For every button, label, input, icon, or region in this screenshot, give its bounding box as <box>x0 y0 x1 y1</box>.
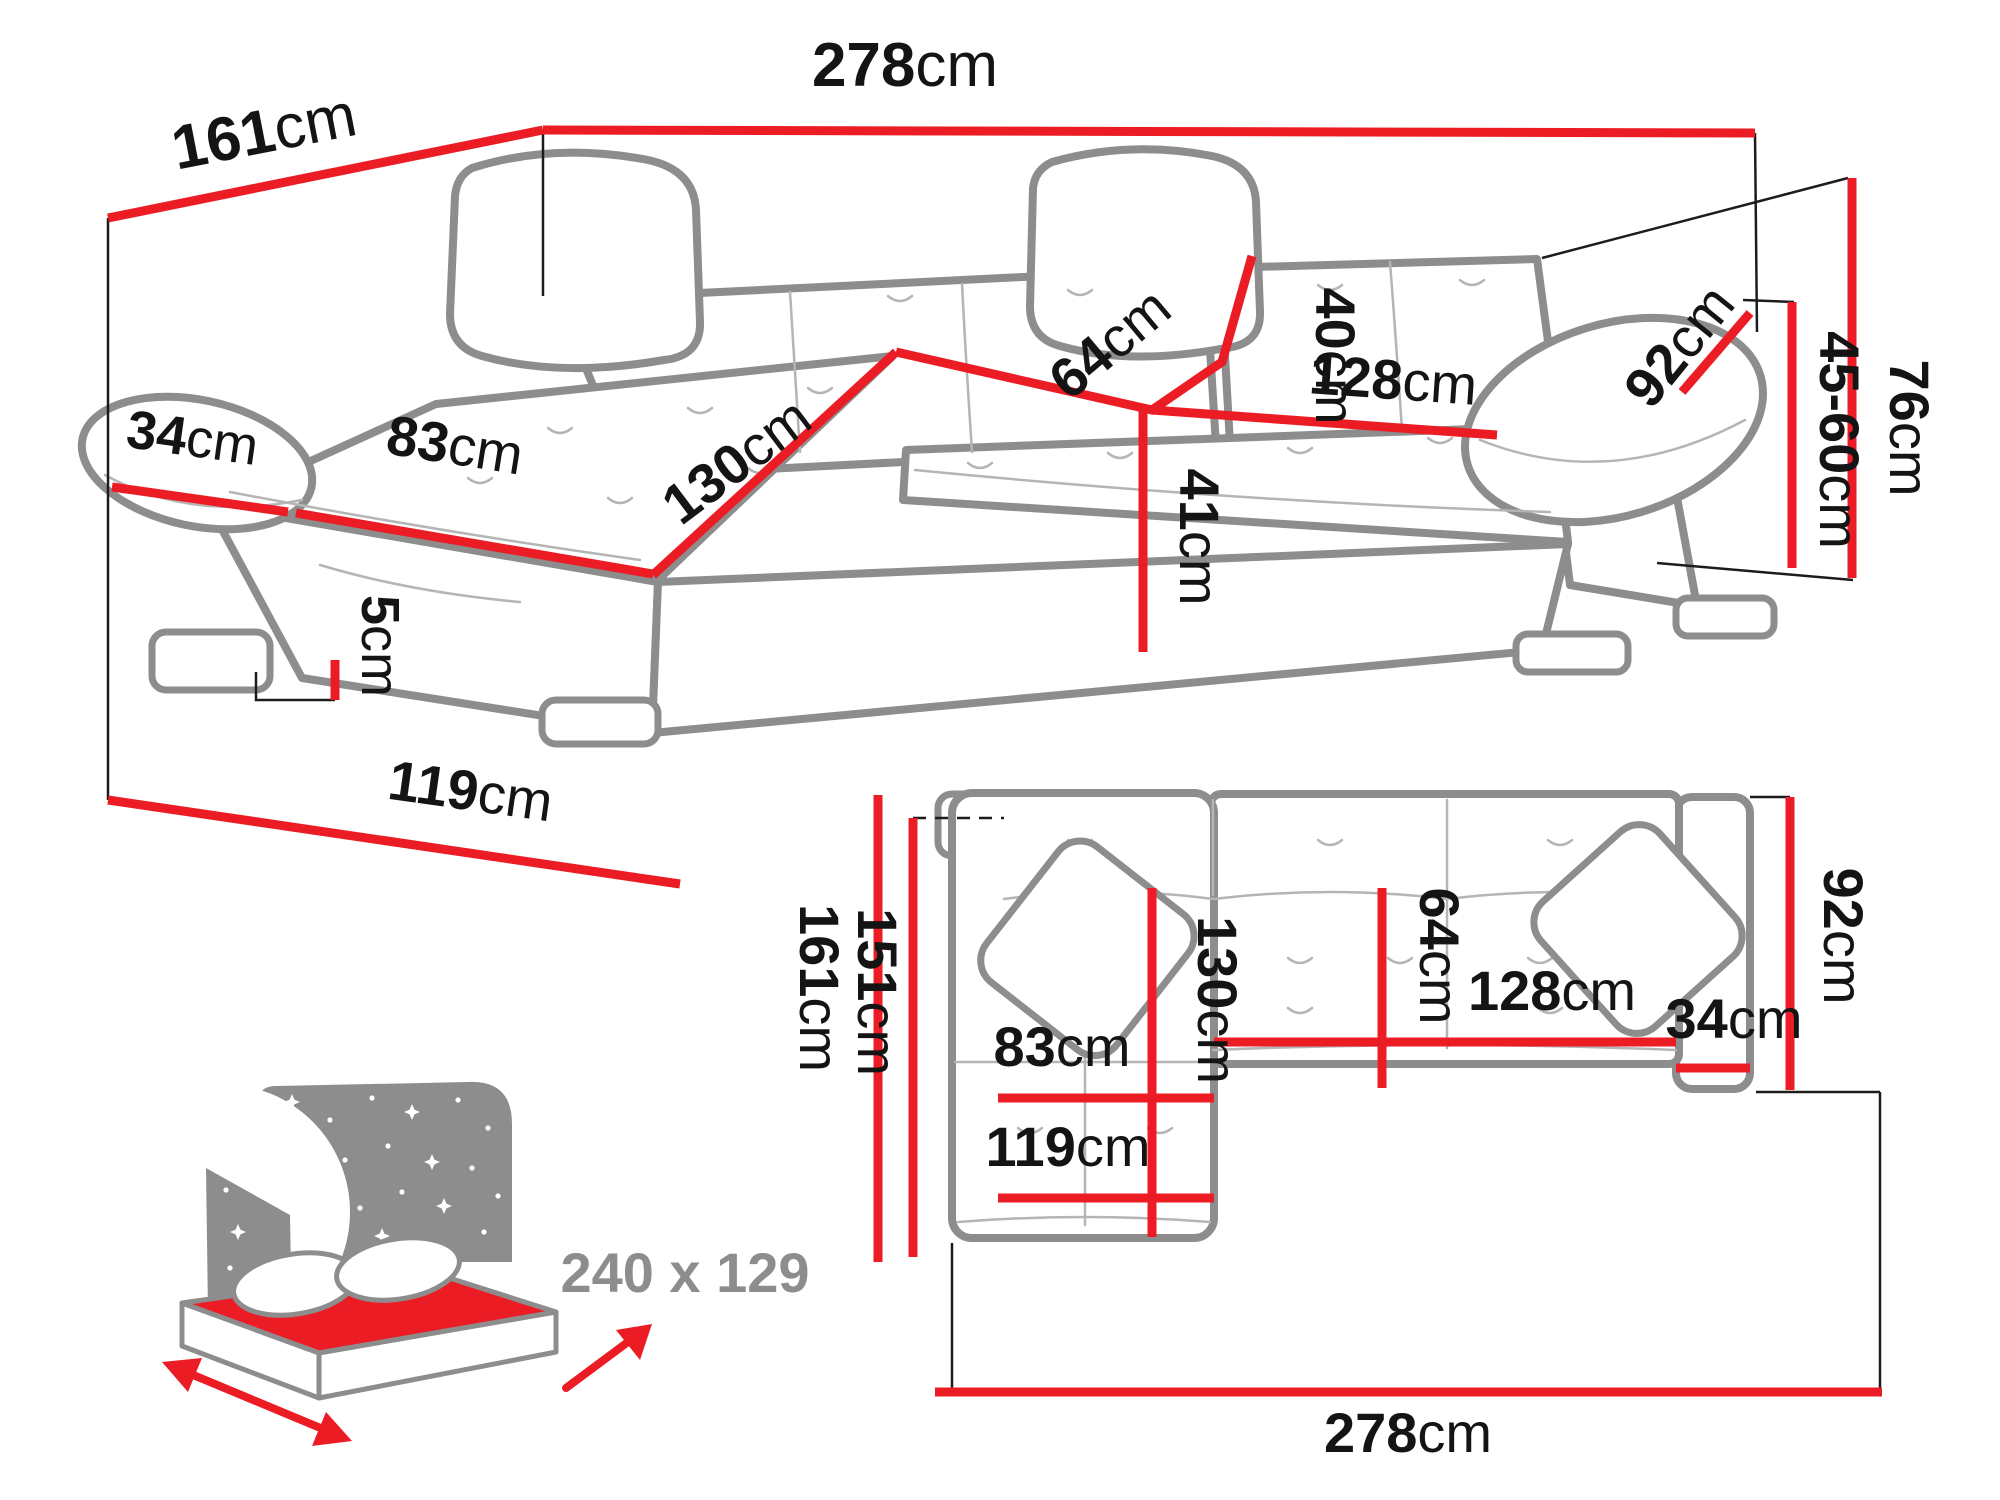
extension-line <box>1755 133 1757 332</box>
dim-total-height-label: 76cm <box>1878 360 1941 497</box>
dim-seat-width-label: 128cm <box>1307 342 1479 417</box>
star-icon <box>357 1205 362 1210</box>
dim-seat-height-label: 41cm <box>1168 469 1231 606</box>
sleeping-area-label: 240 x 129 <box>560 1241 809 1304</box>
star-icon <box>385 1143 390 1148</box>
star-icon <box>455 1097 460 1102</box>
throw-pillow-left <box>450 153 700 368</box>
extension-line <box>1542 178 1848 258</box>
dim-armrest-height-label: 45-60cm <box>1808 331 1871 549</box>
length-arrow-line <box>566 1336 636 1388</box>
dim-front-width-line <box>108 800 680 884</box>
star-icon <box>223 1187 228 1192</box>
dim-front-width-label: 119cm <box>385 748 557 833</box>
sofa-leg <box>1676 598 1774 636</box>
star-icon <box>485 1125 490 1130</box>
sofa-leg <box>152 632 270 690</box>
sofa-front-base <box>652 544 1568 733</box>
star-icon <box>327 1117 332 1122</box>
sofa-dimension-diagram: 278cm 161cm 34cm 83cm 130cm 40cm 64cm 12… <box>0 0 2000 1500</box>
topdim-seat-width-label: 128cm <box>1468 959 1636 1022</box>
topdim-chaise-length-label: 130cm <box>1186 916 1249 1084</box>
extension-line <box>1743 300 1794 302</box>
topdim-right-depth-label: 92cm <box>1812 868 1875 1005</box>
star-icon <box>342 1157 347 1162</box>
dim-back-width-line <box>543 130 1755 133</box>
sofa-leg <box>1516 634 1628 672</box>
topdim-total-width-label: 278cm <box>1324 1401 1492 1464</box>
star-icon <box>227 1265 232 1270</box>
perspective-sofa-drawing <box>69 149 1788 744</box>
dim-leg-height-label: 5cm <box>350 595 410 697</box>
star-icon <box>399 1189 404 1194</box>
star-icon <box>495 1193 500 1198</box>
star-icon <box>335 1237 340 1242</box>
topdim-right-armrest-label: 34cm <box>1666 987 1803 1050</box>
topdim-total-depth-label: 161cm <box>788 904 851 1072</box>
topdim-seat-depth-label: 64cm <box>1408 888 1471 1025</box>
dim-back-width-label: 278cm <box>812 31 998 100</box>
star-icon <box>481 1229 486 1234</box>
topdim-chaise-seat-width-label: 83cm <box>994 1015 1131 1078</box>
sofa-leg <box>542 700 658 744</box>
sleeping-function-icon: 240 x 129 <box>94 1082 810 1446</box>
diagram-canvas: 278cm 161cm 34cm 83cm 130cm 40cm 64cm 12… <box>0 0 2000 1500</box>
topdim-front-width-label: 119cm <box>986 1115 1151 1178</box>
star-icon <box>369 1095 374 1100</box>
topdim-inner-depth-label: 151cm <box>846 908 909 1076</box>
star-icon <box>469 1165 474 1170</box>
